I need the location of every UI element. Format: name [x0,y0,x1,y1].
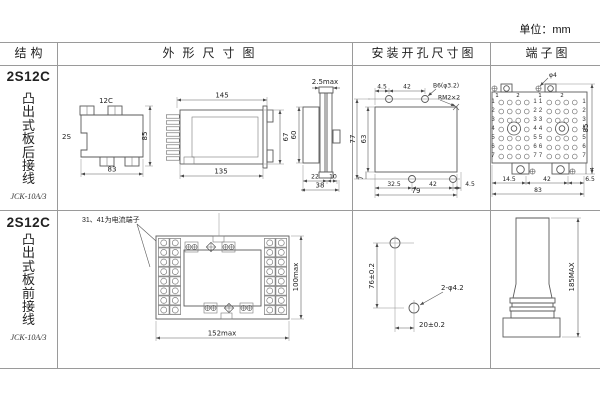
header-structure: 结构 [0,42,57,65]
terminal-profile-row2: 185MAX [503,218,581,337]
dim-145: 145 [215,92,228,100]
outline-front-view-row2: 152max 100max [137,213,304,341]
hole-spec-label: B6(φ3.2) [433,83,459,90]
header-terminals: 端子图 [490,42,600,65]
dim-185max: 185MAX [568,262,576,291]
dim-12c: 12C [99,97,113,105]
outline-top-view: 12C 2S 85 83 [62,97,153,177]
mounting-style-row1: 凸出式板后接线 [22,92,36,186]
header-mounting-holes: 安装开孔尺寸图 [352,42,493,65]
terminal-hole-spec: φ4 [549,72,557,79]
current-terminal-note: 31、41为电流端子 [82,215,140,225]
screw-spec-label: RM2×2 [438,95,460,102]
terminal-row-numbers-mid-b: 1 2 3 4 5 6 7 [538,98,544,161]
dim-100max: 100max [292,263,300,292]
dim-38: 38 [316,182,325,190]
dim-14-5: 14.5 [502,176,516,183]
unit-label: 单位：mm [505,21,585,37]
dim-2s: 2S [62,133,71,141]
table-grid [0,43,600,369]
outline-side-view: 145 135 67 [166,92,290,180]
relay-type-row2: JCK-10A/3 [0,333,57,342]
dim-67: 67 [282,133,290,142]
hole-spec-label-row2: 2-φ4.2 [441,284,464,292]
dim-20: 20±0.2 [419,321,445,329]
terminal-row-numbers-right: 1 2 3 4 5 6 7 [581,98,587,161]
terminal-top-num: 2 [560,93,564,99]
dim-63: 63 [360,135,368,144]
mounting-hole-drawing-row2: 76±0.2 20±0.2 2-φ4.2 [368,236,464,332]
dim-76: 76±0.2 [368,263,376,289]
model-label-row2: 2S12C [0,215,57,230]
terminal-strip-left [158,238,181,315]
datasheet-page: 12C 2S 85 83 145 135 67 [0,0,600,400]
dim-7: 7 [358,176,365,180]
mounting-hole-drawing-row1: 4.5 42 B6(φ3.2) RM2×2 77 63 7 32.5 42 4.… [349,83,475,199]
dim-60: 60 [290,131,298,140]
relay-type-row1: JCK-10A/3 [0,192,57,201]
model-label-row1: 2S12C [0,69,57,84]
dim-4-5-bottom: 4.5 [465,181,475,188]
dim-152max: 152max [208,330,237,338]
dim-4-terminal: 4 [590,167,596,171]
header-outline-dimensions: 外形尺寸图 [57,42,360,65]
terminal-pins-comb [166,114,180,162]
dim-22: 22 [311,174,319,181]
outline-end-view: 2.5max 60 22 10 38 [290,78,340,192]
dim-135: 135 [214,168,227,176]
terminal-row-numbers-left: 1 2 3 4 5 6 7 [490,98,496,161]
dim-79: 79 [412,187,421,195]
terminal-strip-right [264,238,287,315]
dim-2-5max: 2.5max [312,78,338,86]
dim-83: 83 [108,166,117,174]
mounting-style-row2: 凸出式板前接线 [22,233,36,327]
dim-10: 10 [329,174,337,181]
dim-85: 85 [141,132,149,141]
dim-42-bottom: 42 [429,181,437,188]
dim-77: 77 [349,135,357,144]
dim-83-terminal: 83 [534,187,542,194]
dim-42-terminal: 42 [543,176,551,183]
dim-4-5-top: 4.5 [377,84,387,91]
dim-6-5: 6.5 [585,176,595,183]
terminal-top-num: 2 [516,93,520,99]
dim-32-5: 32.5 [387,181,401,188]
dim-42-top: 42 [403,84,411,91]
